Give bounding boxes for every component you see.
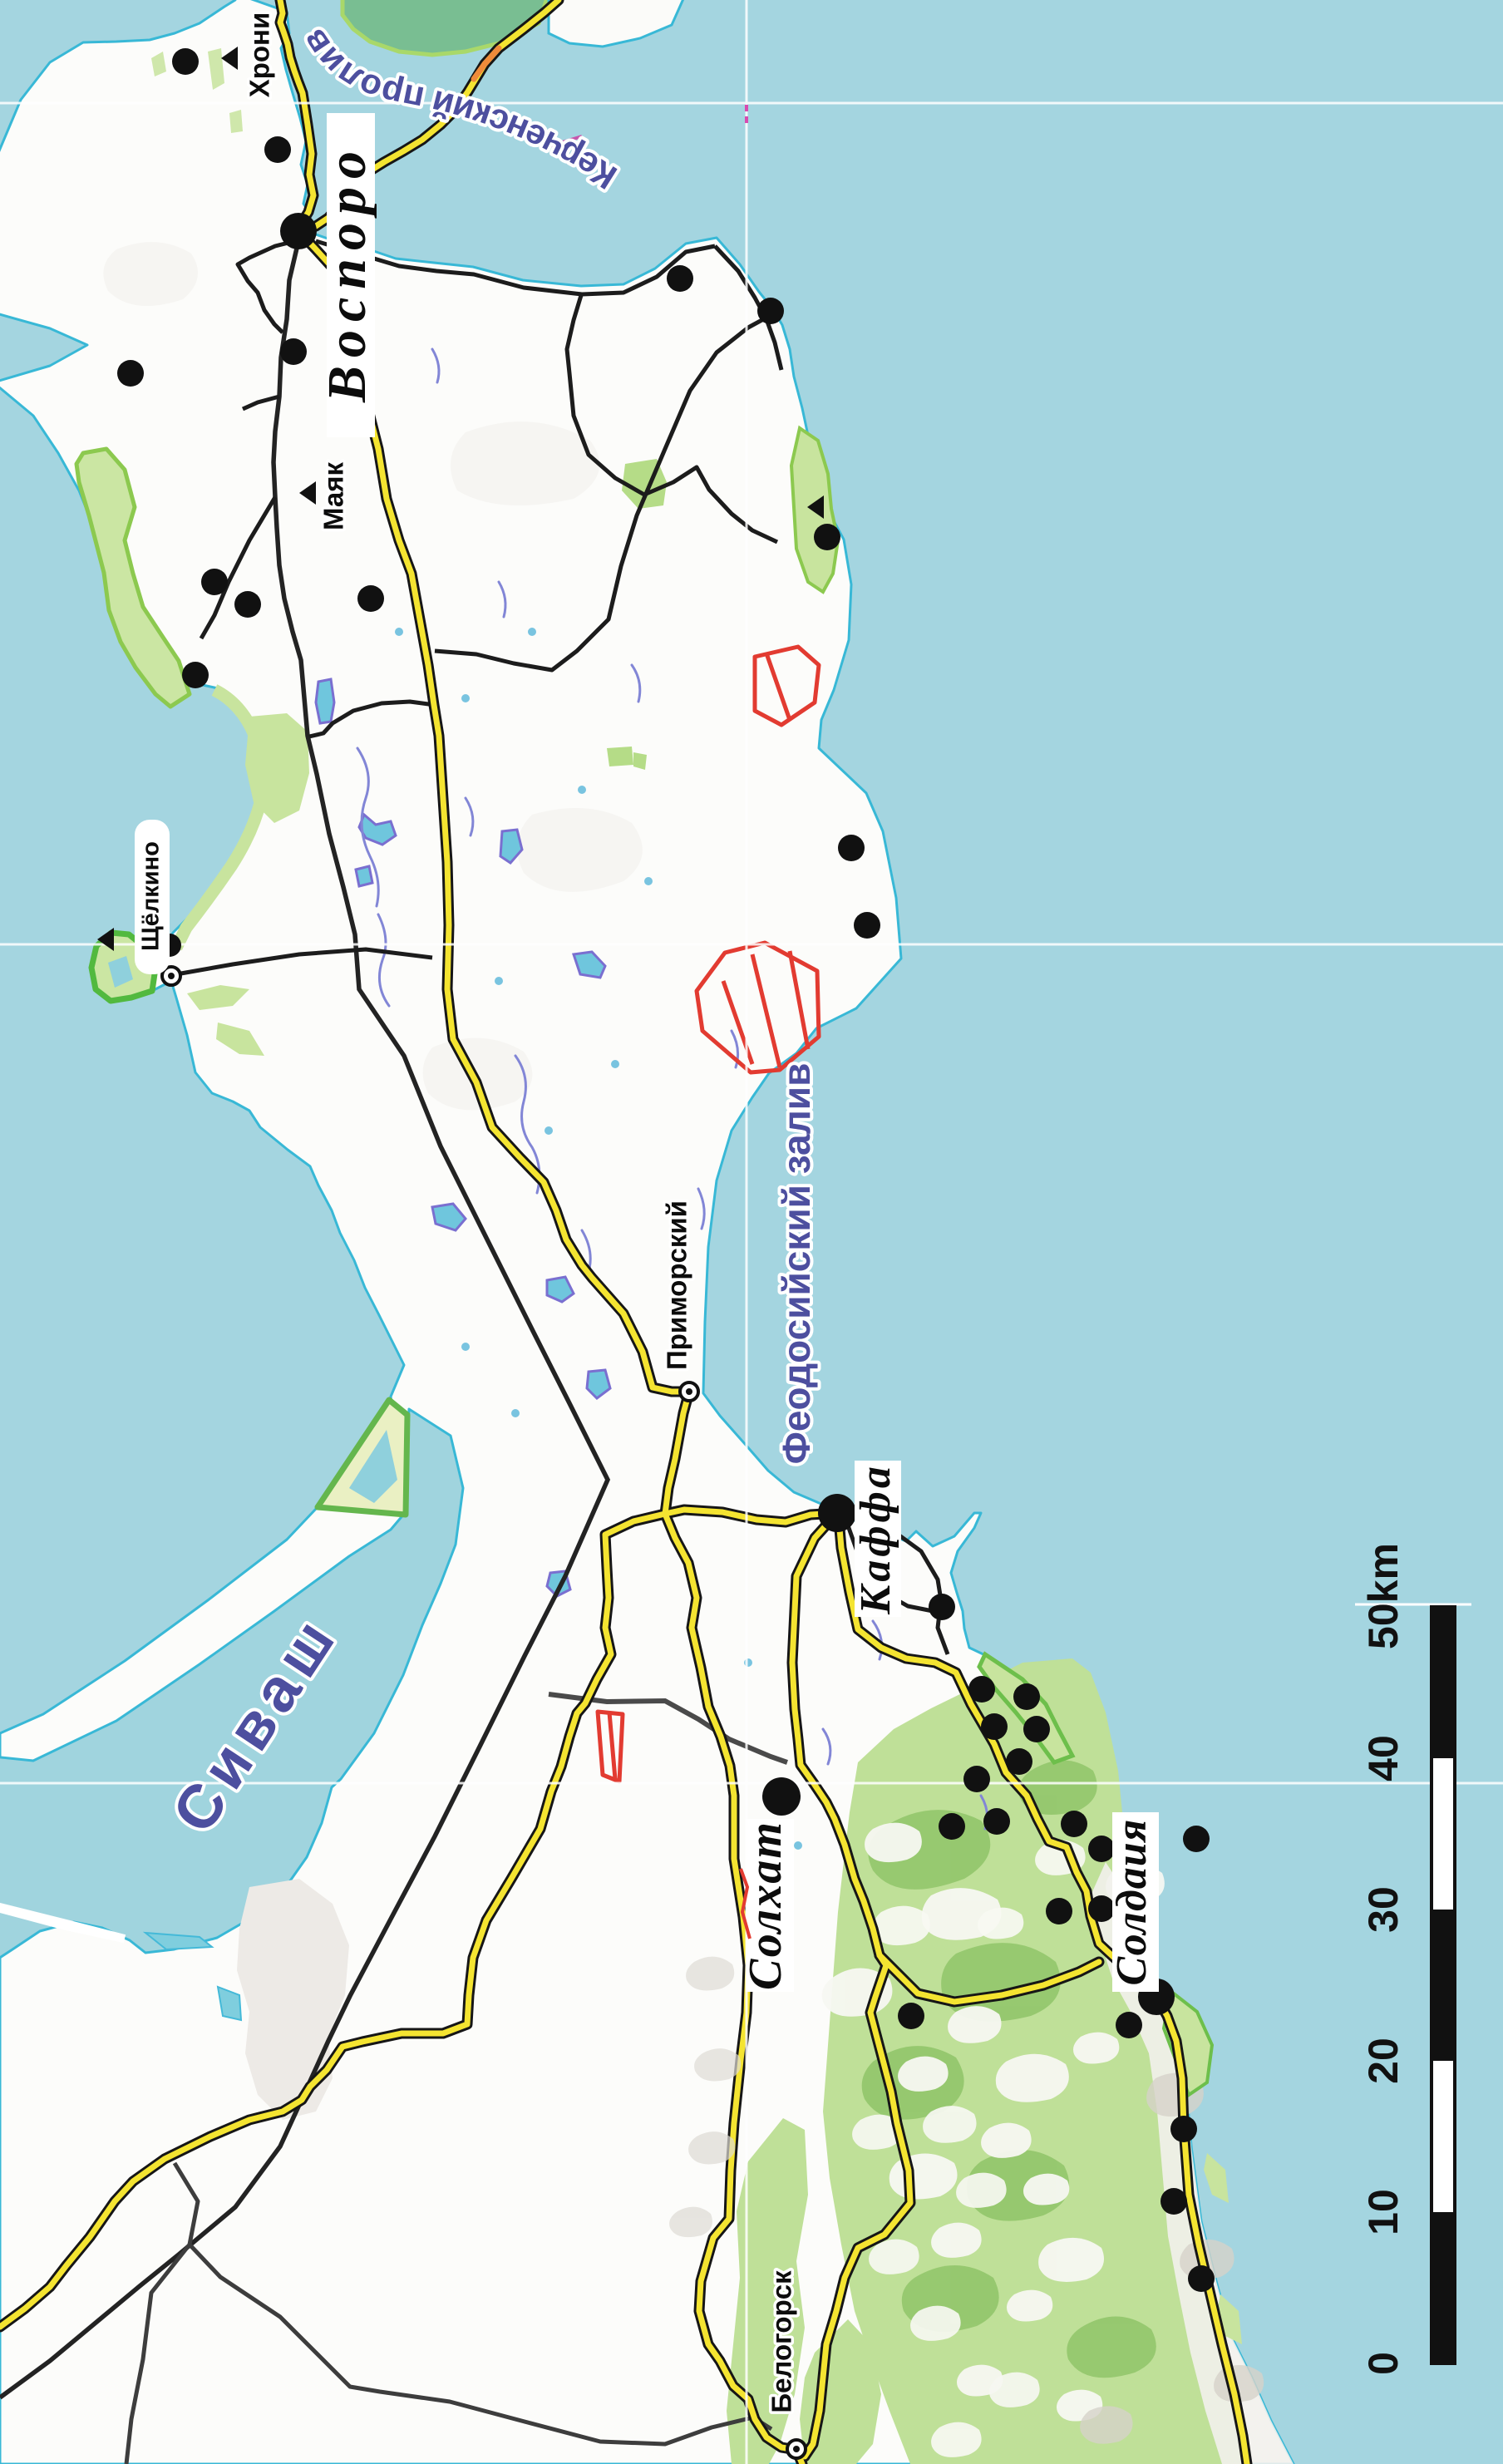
- svg-text:Приморский: Приморский: [662, 1200, 692, 1370]
- svg-text:20: 20: [1360, 2038, 1407, 2084]
- svg-text:Воспоро: Воспоро: [317, 143, 377, 403]
- svg-text:Солхат: Солхат: [740, 1821, 791, 1990]
- svg-text:40: 40: [1360, 1735, 1407, 1781]
- svg-text:10: 10: [1360, 2189, 1407, 2235]
- svg-text:Щёлкино: Щёлкино: [138, 841, 165, 951]
- svg-text:50km: 50km: [1360, 1543, 1407, 1649]
- svg-text:Хрони: Хрони: [244, 12, 275, 98]
- svg-text:30: 30: [1360, 1886, 1407, 1933]
- svg-text:Феодосийский залив: Феодосийский залив: [775, 1063, 818, 1465]
- svg-text:Маяк: Маяк: [318, 462, 349, 531]
- svg-text:Каффа: Каффа: [852, 1463, 899, 1615]
- svg-text:0: 0: [1360, 2352, 1407, 2375]
- svg-text:Белогорск: Белогорск: [766, 2270, 797, 2413]
- svg-text:Солдаия: Солдаия: [1108, 1819, 1156, 1986]
